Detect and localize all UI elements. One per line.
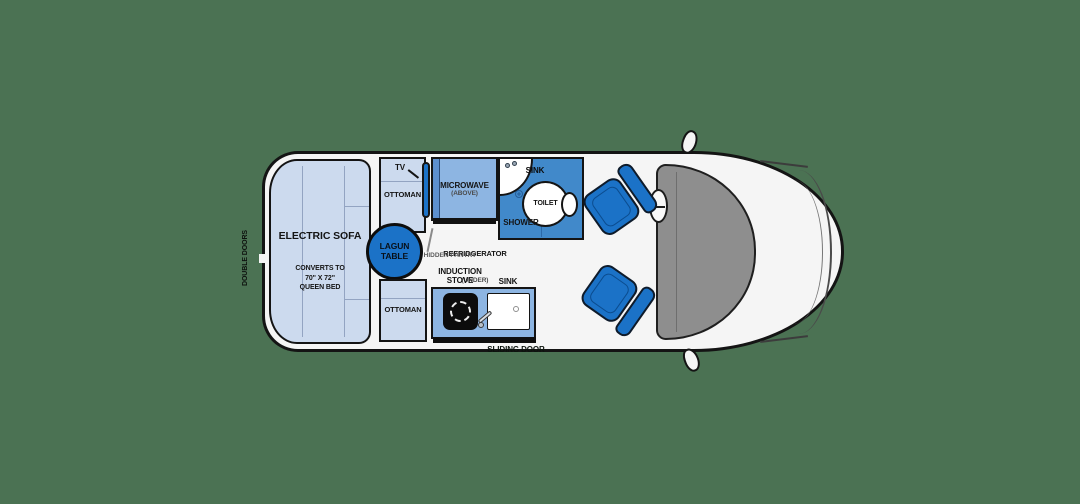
induction-stove-label: INDUCTION STOVE	[430, 267, 490, 285]
double-doors-label: DOUBLE DOORS	[242, 208, 254, 308]
sofa-subtitle: CONVERTS TO 70" X 72" QUEEN BED	[272, 264, 368, 293]
faucet-icon	[512, 161, 517, 166]
rear-door-split	[259, 254, 266, 263]
shower-drain-icon	[515, 190, 523, 198]
lagun-table: LAGUN TABLE	[366, 223, 423, 280]
bath-sink-label: SINK	[520, 166, 550, 175]
galley-sink	[487, 293, 530, 330]
galley-sink-label: SINK	[490, 277, 526, 286]
microwave-sublabel: (ABOVE)	[451, 190, 478, 197]
ottoman-bottom-label: OTTOMAN	[384, 306, 421, 315]
burner-icon	[450, 301, 471, 322]
toilet-label: TOILET	[533, 200, 557, 208]
ottoman-top-label: OTTOMAN	[384, 191, 421, 200]
induction-stove	[443, 293, 478, 330]
ottoman-seam	[381, 298, 425, 299]
counter-edge	[433, 218, 496, 224]
lagun-table-label: LAGUN TABLE	[380, 242, 410, 262]
sofa-seam	[344, 206, 369, 207]
hidden-pantry-label: HIDDEN PANTRY	[418, 252, 482, 259]
floorplan-scene: ELECTRIC SOFA CONVERTS TO 70" X 72" QUEE…	[0, 0, 1080, 504]
electric-sofa-label: ELECTRIC SOFA CONVERTS TO 70" X 72" QUEE…	[272, 212, 368, 312]
cabinet-edge	[433, 159, 440, 219]
sliding-door-sill	[433, 337, 536, 343]
sink-drain-icon	[513, 306, 519, 312]
faucet-base-icon	[478, 322, 484, 328]
sofa-title: ELECTRIC SOFA	[272, 230, 368, 242]
shower-label: SHOWER	[500, 218, 542, 227]
ottoman-bottom: OTTOMAN	[379, 279, 427, 342]
sliding-door-label: SLIDING DOOR	[466, 345, 566, 354]
microwave-label: MICROWAVE	[440, 181, 489, 190]
ottoman-seam	[381, 181, 424, 182]
tv-label: TV	[390, 163, 410, 172]
tv	[422, 162, 430, 218]
faucet-icon	[505, 163, 510, 168]
microwave-cabinet: MICROWAVE (ABOVE)	[431, 157, 498, 221]
